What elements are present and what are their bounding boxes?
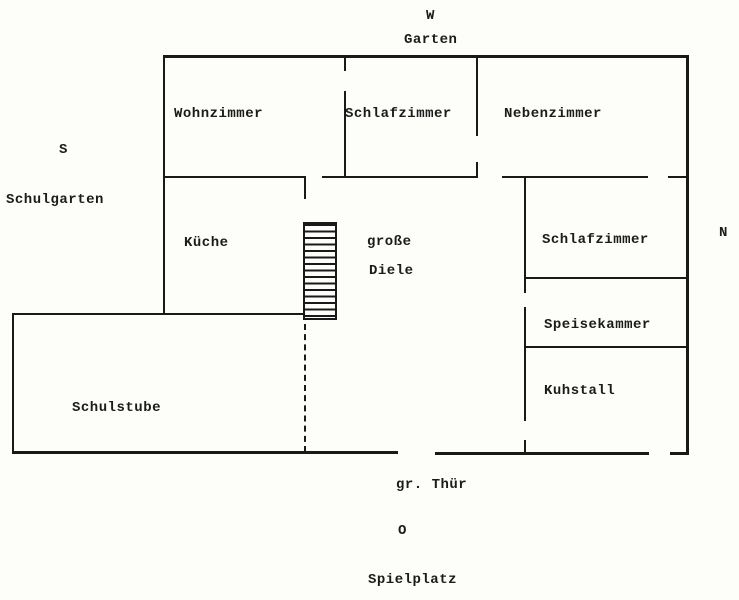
wall-outer-bottom-right-segment — [670, 452, 688, 455]
wall-diele-right-lower — [524, 440, 526, 455]
wall-wohnzimmer-schlafzimmer-upper — [344, 55, 346, 71]
wall-schlafzimmer-speisekammer — [524, 277, 688, 279]
compass-east-label: O — [398, 523, 407, 539]
schulgarten-label: Schulgarten — [6, 192, 104, 208]
wall-mid-segment-2 — [322, 176, 478, 178]
compass-west-label: W — [426, 8, 435, 24]
floor-plan-page: W Garten S Schulgarten N gr. Thür O Spie… — [0, 0, 739, 600]
dashed-passage-line — [304, 324, 306, 452]
compass-south-label: S — [59, 142, 68, 158]
room-label-kueche: Küche — [184, 235, 229, 251]
garten-label: Garten — [404, 32, 457, 48]
room-label-diele-line2: Diele — [369, 263, 414, 279]
wall-outer-bottom-left-segment — [12, 451, 398, 454]
room-label-wohnzimmer: Wohnzimmer — [174, 106, 263, 122]
wall-diele-right-upper — [524, 176, 526, 293]
wall-annex-left — [12, 313, 14, 454]
room-label-nebenzimmer: Nebenzimmer — [504, 106, 602, 122]
room-label-diele-line1: große — [367, 234, 412, 250]
wall-outer-bottom-mid-segment — [435, 452, 649, 455]
room-label-kuhstall: Kuhstall — [544, 383, 615, 399]
compass-north-label: N — [719, 225, 728, 241]
wall-speisekammer-kuhstall — [524, 346, 688, 348]
room-label-schlafzimmer-right: Schlafzimmer — [542, 232, 649, 248]
wall-outer-top — [163, 55, 688, 58]
wall-wohnzimmer-schlafzimmer-lower — [344, 91, 346, 178]
room-label-speisekammer: Speisekammer — [544, 317, 651, 333]
room-label-schlafzimmer-top: Schlafzimmer — [345, 106, 452, 122]
wall-mid-segment-1 — [163, 176, 306, 178]
wall-outer-right — [686, 55, 689, 455]
wall-mid-segment-4 — [668, 176, 688, 178]
wall-schlafzimmer-nebenzimmer-upper — [476, 55, 478, 136]
grosse-tuer-label: gr. Thür — [396, 477, 467, 493]
room-label-schulstube: Schulstube — [72, 400, 161, 416]
staircase — [303, 222, 337, 320]
wall-mid-door-jamb — [304, 176, 306, 199]
wall-annex-top — [12, 313, 305, 315]
wall-diele-right-middle — [524, 307, 526, 421]
wall-outer-left-main — [163, 55, 165, 315]
spielplatz-label: Spielplatz — [368, 572, 457, 588]
